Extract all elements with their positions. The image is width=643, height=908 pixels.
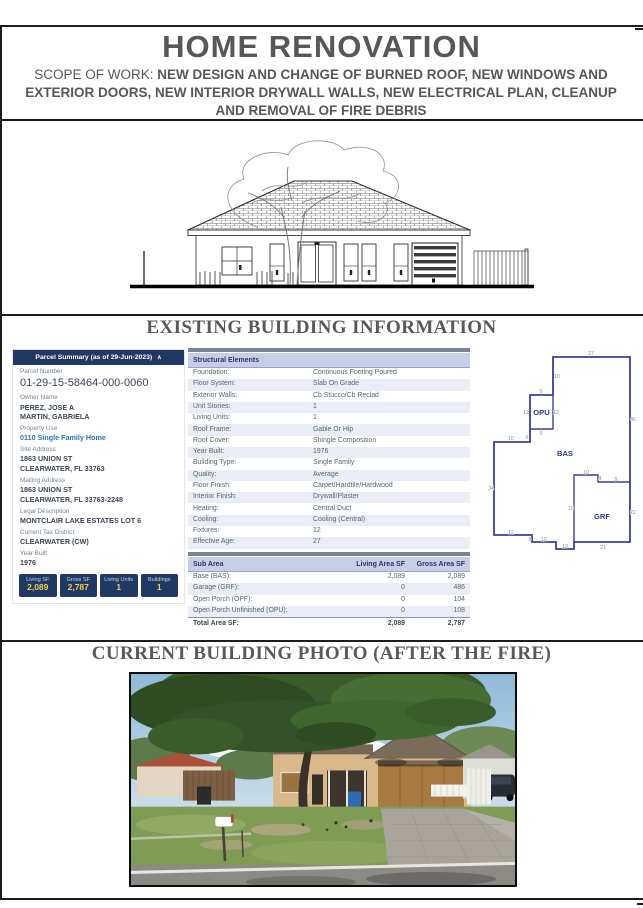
field-label: Mailing Address xyxy=(20,477,177,485)
struct-row: Unit Stories:1 xyxy=(188,402,470,413)
struct-value: Cooling (Central) xyxy=(313,517,465,524)
dark-door xyxy=(312,774,323,804)
struct-value: Average xyxy=(313,472,465,479)
stat-box-gross-sf: Gross SF2,787 xyxy=(60,574,98,597)
gross-area-sf: 104 xyxy=(405,597,465,604)
field-label: Current Tax District xyxy=(20,529,177,537)
floor-plan-sketch: 27 10 9 12 12 9 6 10 34 12 8 10 13 16 10… xyxy=(478,345,640,565)
stat-value: 2,787 xyxy=(60,583,98,593)
subarea-name: Open Porch (OPF): xyxy=(193,597,345,604)
stat-box-living-units: Living Units1 xyxy=(100,574,138,597)
svg-text:34: 34 xyxy=(488,486,494,492)
svg-text:9: 9 xyxy=(540,431,543,437)
blue-trash-bin xyxy=(348,792,361,809)
field-label: Property Use xyxy=(20,425,177,433)
corner-tick-bottom xyxy=(637,903,643,905)
col-sub-area: Sub Area xyxy=(193,561,345,568)
struct-value: Central Duct xyxy=(313,506,465,513)
svg-text:46: 46 xyxy=(630,417,636,423)
struct-label: Heating: xyxy=(193,506,313,513)
struct-label: Effective Age: xyxy=(193,539,313,546)
struct-row: Fixtures:12 xyxy=(188,526,470,537)
struct-label: Building Type: xyxy=(193,460,313,467)
subarea-name: Base (BAS): xyxy=(193,574,345,581)
stat-value: 2,089 xyxy=(19,583,57,593)
struct-value: Single Family xyxy=(313,460,465,467)
svg-text:9: 9 xyxy=(615,477,618,483)
svg-text:6: 6 xyxy=(526,435,529,441)
struct-row: Roof Frame:Gable Or Hip xyxy=(188,424,470,435)
struct-label: Floor Finish: xyxy=(193,483,313,490)
sub-area-table: Sub Area Living Area SF Gross Area SF Ba… xyxy=(188,552,470,630)
stat-value: 1 xyxy=(100,583,138,593)
table-top-bar xyxy=(188,348,470,352)
parcel-summary-title: Parcel Summary (as of 29-Jun-2023) xyxy=(35,354,152,361)
struct-row: Heating:Central Duct xyxy=(188,503,470,514)
field-value: 1976 xyxy=(20,558,177,568)
section-title-existing: EXISTING BUILDING INFORMATION xyxy=(0,317,643,339)
table-top-bar xyxy=(188,552,470,556)
total-living-sf: 2,089 xyxy=(345,621,405,628)
struct-label: Floor System: xyxy=(193,381,313,388)
parcel-field-year-built: Year Built1976 xyxy=(13,547,184,568)
struct-label: Unit Stories: xyxy=(193,404,313,411)
struct-row: Quality:Average xyxy=(188,470,470,481)
structural-elements-header: Structural Elements xyxy=(188,353,470,368)
parcel-field-site-address: Site Address1863 UNION ST CLEARWATER, FL… xyxy=(13,443,184,474)
field-label: Parcel Number xyxy=(20,368,177,376)
struct-label: Fixtures: xyxy=(193,528,313,535)
double-door xyxy=(298,242,336,285)
gross-area-sf: 486 xyxy=(405,585,465,592)
subarea-row: Base (BAS):2,0892,089 xyxy=(188,572,470,583)
page-title: HOME RENOVATION xyxy=(0,29,643,65)
parcel-field-mailing-address: Mailing Address1863 UNION ST CLEARWATER,… xyxy=(13,474,184,505)
gross-area-sf: 108 xyxy=(405,608,465,615)
struct-row: Effective Age:27 xyxy=(188,537,470,548)
svg-text:9: 9 xyxy=(540,389,543,395)
col-gross-area-sf: Gross Area SF xyxy=(405,561,465,568)
struct-value: Continuous Footing Poured xyxy=(313,370,465,377)
page-left-border xyxy=(0,25,2,899)
svg-text:12: 12 xyxy=(553,410,559,416)
struct-row: Building Type:Single Family xyxy=(188,458,470,469)
subarea-name: Open Porch Unfinished (OPU): xyxy=(193,608,345,615)
subarea-row: Open Porch Unfinished (OPU):0108 xyxy=(188,606,470,617)
struct-value: 27 xyxy=(313,539,465,546)
garage-door xyxy=(412,243,458,285)
gross-area-sf: 2,089 xyxy=(405,574,465,581)
struct-value: Drywall/Plaster xyxy=(313,494,465,501)
struct-value: 12 xyxy=(313,528,465,535)
struct-row: Interior Finish:Drywall/Plaster xyxy=(188,492,470,503)
elevation-drawing xyxy=(102,131,548,309)
parcel-summary-panel: Parcel Summary (as of 29-Jun-2023) ∧ Par… xyxy=(12,349,185,604)
struct-value: Gable Or Hip xyxy=(313,427,465,434)
living-area-sf: 0 xyxy=(345,585,405,592)
svg-text:16: 16 xyxy=(568,506,574,512)
sub-area-rows: Base (BAS):2,0892,089Garage (GRF):0486Op… xyxy=(188,572,470,617)
field-label: Owner Name xyxy=(20,394,177,402)
road xyxy=(131,862,515,885)
field-value: CLEARWATER (CW) xyxy=(20,537,177,547)
scope-of-work: SCOPE OF WORK: NEW DESIGN AND CHANGE OF … xyxy=(21,66,621,120)
parcel-summary-header[interactable]: Parcel Summary (as of 29-Jun-2023) ∧ xyxy=(13,350,184,365)
struct-label: Interior Finish: xyxy=(193,494,313,501)
svg-text:10: 10 xyxy=(583,470,589,476)
parcel-fields: Parcel Number01-29-15-58464-000-0060Owne… xyxy=(13,365,184,568)
divider-section-1 xyxy=(0,314,643,316)
struct-label: Living Units: xyxy=(193,415,313,422)
parcel-field-current-tax-district: Current Tax DistrictCLEARWATER (CW) xyxy=(13,526,184,547)
sub-area-total-row: Total Area SF: 2,089 2,787 xyxy=(188,617,470,630)
divider-bottom xyxy=(0,898,643,900)
divider-top xyxy=(0,25,643,27)
struct-row: Cooling:Cooling (Central) xyxy=(188,515,470,526)
svg-text:10: 10 xyxy=(508,436,514,442)
struct-label: Cooling: xyxy=(193,517,313,524)
living-area-sf: 2,089 xyxy=(345,574,405,581)
struct-row: Exterior Walls:Cb Stucco/Cb Reclad xyxy=(188,391,470,402)
struct-label: Exterior Walls: xyxy=(193,393,313,400)
subarea-row: Open Porch (OPF):0104 xyxy=(188,595,470,606)
struct-row: Living Units:1 xyxy=(188,413,470,424)
parcel-field-legal-description: Legal DescriptionMONTCLAIR LAKE ESTATES … xyxy=(13,505,184,526)
trash-can-dark xyxy=(197,787,211,805)
svg-text:21: 21 xyxy=(600,545,606,551)
struct-label: Roof Cover: xyxy=(193,438,313,445)
field-label: Site Address xyxy=(20,446,177,454)
struct-value: 1 xyxy=(313,415,465,422)
parcel-field-parcel-number: Parcel Number01-29-15-58464-000-0060 xyxy=(13,365,184,391)
living-area-sf: 0 xyxy=(345,608,405,615)
svg-text:12: 12 xyxy=(523,410,529,416)
svg-text:13: 13 xyxy=(562,544,568,550)
house-roof xyxy=(188,181,470,236)
sub-area-header-row: Sub Area Living Area SF Gross Area SF xyxy=(188,557,470,572)
svg-text:22: 22 xyxy=(630,510,636,516)
struct-value: Cb Stucco/Cb Reclad xyxy=(313,393,465,400)
parcel-field-property-use: Property Use0110 Single Family Home xyxy=(13,422,184,443)
total-gross-sf: 2,787 xyxy=(405,621,465,628)
svg-text:12: 12 xyxy=(508,530,514,536)
field-value[interactable]: 0110 Single Family Home xyxy=(20,433,177,443)
field-label: Legal Description xyxy=(20,508,177,516)
field-value: 1863 UNION ST CLEARWATER, FL 33763-2248 xyxy=(20,485,177,504)
struct-row: Floor System:Slab On Grade xyxy=(188,379,470,390)
structural-elements-table: Structural Elements Foundation:Continuou… xyxy=(188,348,470,549)
svg-text:8: 8 xyxy=(529,537,532,543)
picket-fence xyxy=(431,785,467,797)
section-title-photo: CURRENT BUILDING PHOTO (AFTER THE FIRE) xyxy=(0,643,643,665)
struct-value: Slab On Grade xyxy=(313,381,465,388)
struct-value: 1 xyxy=(313,404,465,411)
field-value: 01-29-15-58464-000-0060 xyxy=(20,376,177,391)
struct-value: Shingle Composition xyxy=(313,438,465,445)
sign-post xyxy=(242,831,243,857)
subarea-row: Garage (GRF):0486 xyxy=(188,583,470,594)
struct-value: Carpet/Hardtile/Hardwood xyxy=(313,483,465,490)
struct-row: Roof Cover:Shingle Composition xyxy=(188,436,470,447)
fence-right xyxy=(474,249,528,285)
struct-row: Floor Finish:Carpet/Hardtile/Hardwood xyxy=(188,481,470,492)
plan-area-labels: OPU BAS GRF xyxy=(533,408,610,521)
document-page: HOME RENOVATION SCOPE OF WORK: NEW DESIG… xyxy=(0,0,643,908)
struct-row: Year Built:1976 xyxy=(188,447,470,458)
structural-elements-rows: Foundation:Continuous Footing PouredFloo… xyxy=(188,368,470,549)
mailbox-flag xyxy=(231,815,234,823)
stat-box-living-sf: Living SF2,089 xyxy=(19,574,57,597)
dirt-patch xyxy=(200,840,252,850)
svg-text:4: 4 xyxy=(599,476,602,482)
field-label: Year Built xyxy=(20,550,177,558)
parcel-stat-boxes: Living SF2,089Gross SF2,787Living Units1… xyxy=(13,568,184,597)
divider-section-2 xyxy=(0,640,643,642)
field-value: 1863 UNION ST CLEARWATER, FL 33763 xyxy=(20,454,177,473)
col-living-area-sf: Living Area SF xyxy=(345,561,405,568)
struct-row: Foundation:Continuous Footing Poured xyxy=(188,368,470,379)
stat-value: 1 xyxy=(141,583,179,593)
svg-text:10: 10 xyxy=(541,537,547,543)
svg-text:10: 10 xyxy=(554,374,560,380)
building-photo xyxy=(129,672,517,887)
area-label-opu: OPU xyxy=(533,408,550,417)
stat-box-buildings: Buildings1 xyxy=(141,574,179,597)
collapse-caret-icon[interactable]: ∧ xyxy=(157,354,161,361)
field-value: PEREZ, JOSE A MARTIN, GABRIELA xyxy=(20,403,177,422)
dirt-patch xyxy=(341,820,385,830)
field-value: MONTCLAIR LAKE ESTATES LOT 6 xyxy=(20,516,177,526)
area-label-grf: GRF xyxy=(594,512,610,521)
area-label-bas: BAS xyxy=(557,449,573,458)
svg-text:27: 27 xyxy=(588,351,594,357)
living-area-sf: 0 xyxy=(345,597,405,604)
struct-label: Roof Frame: xyxy=(193,427,313,434)
driveway xyxy=(381,809,515,871)
scope-label: SCOPE OF WORK: xyxy=(34,67,157,82)
struct-label: Quality: xyxy=(193,472,313,479)
subarea-name: Garage (GRF): xyxy=(193,585,345,592)
struct-label: Foundation: xyxy=(193,370,313,377)
struct-value: 1976 xyxy=(313,449,465,456)
total-label: Total Area SF: xyxy=(193,621,345,628)
struct-label: Year Built: xyxy=(193,449,313,456)
parcel-field-owner-name: Owner NamePEREZ, JOSE A MARTIN, GABRIELA xyxy=(13,391,184,422)
window-left xyxy=(222,247,252,275)
